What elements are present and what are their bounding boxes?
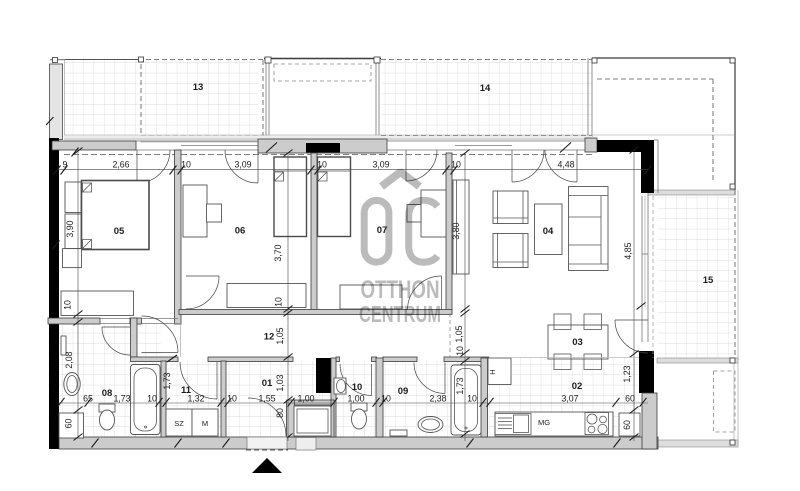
- svg-text:3,09: 3,09: [234, 159, 251, 169]
- svg-text:12: 12: [264, 332, 275, 343]
- svg-text:2,08: 2,08: [64, 351, 74, 368]
- svg-text:H: H: [488, 369, 497, 374]
- svg-text:05: 05: [114, 226, 125, 237]
- svg-text:1,23: 1,23: [622, 365, 632, 382]
- svg-text:10: 10: [352, 382, 363, 393]
- svg-text:1,05: 1,05: [454, 325, 464, 342]
- svg-text:01: 01: [262, 378, 273, 389]
- svg-text:1,05: 1,05: [275, 327, 285, 344]
- svg-text:80: 80: [275, 408, 285, 418]
- svg-text:02: 02: [572, 381, 583, 392]
- svg-text:10: 10: [467, 393, 477, 403]
- svg-text:60: 60: [622, 420, 632, 430]
- svg-text:3,07: 3,07: [561, 393, 578, 403]
- svg-text:3,09: 3,09: [372, 159, 389, 169]
- svg-text:1,32: 1,32: [187, 393, 204, 403]
- svg-text:06: 06: [235, 226, 246, 237]
- svg-text:60: 60: [625, 393, 635, 403]
- svg-text:10: 10: [274, 297, 284, 307]
- svg-text:1,73: 1,73: [113, 393, 130, 403]
- svg-text:3,70: 3,70: [273, 244, 283, 261]
- svg-text:4,48: 4,48: [557, 159, 574, 169]
- svg-text:MG: MG: [538, 418, 550, 427]
- svg-text:1,73: 1,73: [162, 372, 172, 389]
- svg-text:15: 15: [703, 275, 714, 286]
- svg-text:1,73: 1,73: [455, 377, 465, 394]
- svg-text:60: 60: [64, 419, 74, 429]
- svg-text:3,90: 3,90: [65, 220, 75, 237]
- svg-text:3,80: 3,80: [451, 222, 461, 239]
- svg-text:10: 10: [147, 393, 157, 403]
- svg-text:10: 10: [63, 300, 73, 310]
- svg-text:13: 13: [193, 82, 204, 93]
- svg-text:14: 14: [480, 83, 491, 94]
- svg-text:09: 09: [398, 386, 409, 397]
- svg-text:1,03: 1,03: [275, 374, 285, 391]
- svg-text:2,38: 2,38: [429, 393, 446, 403]
- svg-text:OTTHON: OTTHON: [361, 276, 440, 304]
- svg-text:10: 10: [317, 159, 327, 169]
- svg-text:08: 08: [102, 388, 113, 399]
- svg-text:CENTRUM: CENTRUM: [359, 301, 441, 327]
- svg-text:1,55: 1,55: [258, 393, 275, 403]
- svg-text:03: 03: [572, 337, 583, 348]
- svg-text:04: 04: [543, 226, 554, 237]
- svg-text:SZ: SZ: [174, 419, 184, 428]
- svg-text:M: M: [202, 419, 208, 428]
- svg-text:2,66: 2,66: [112, 159, 129, 169]
- svg-text:4,85: 4,85: [623, 242, 633, 259]
- svg-text:1,00: 1,00: [347, 393, 364, 403]
- svg-text:1,00: 1,00: [297, 393, 314, 403]
